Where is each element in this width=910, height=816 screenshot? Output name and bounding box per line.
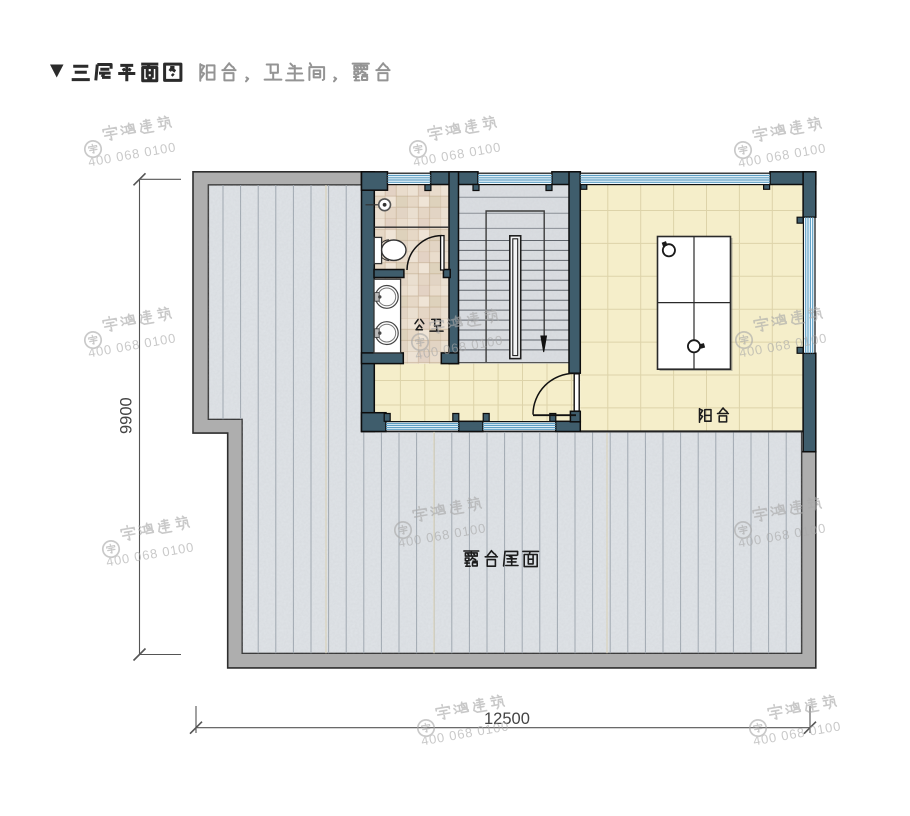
svg-text:9900: 9900 [118,397,136,434]
